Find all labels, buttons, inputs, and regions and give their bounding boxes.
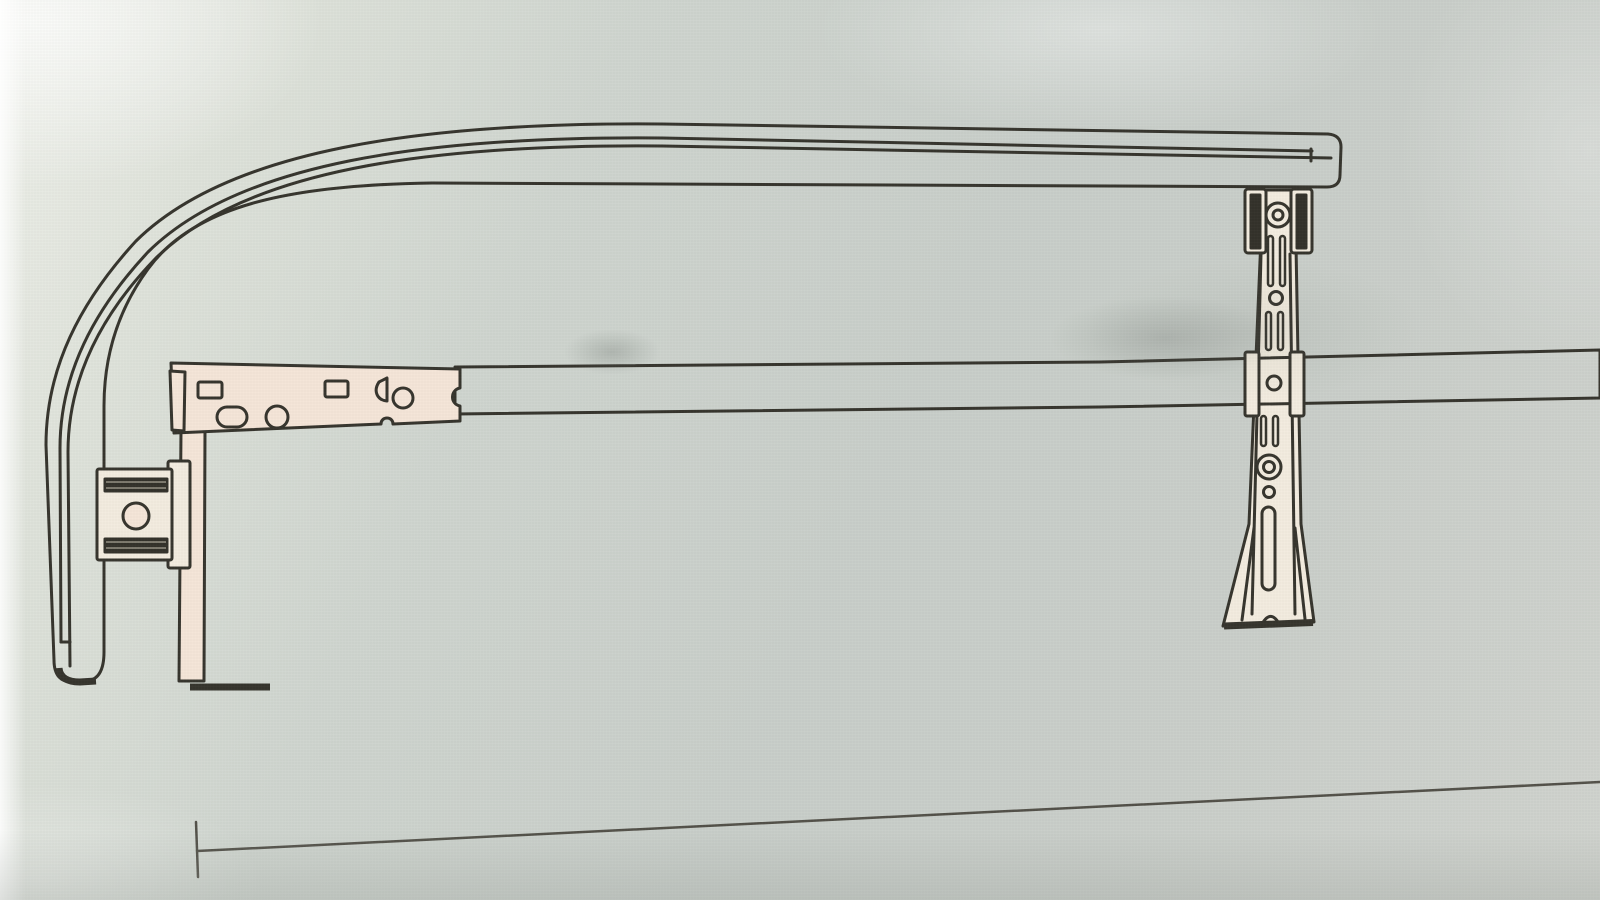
finger-shadow-small	[564, 329, 660, 375]
bracket-plate	[170, 363, 460, 433]
track-end-cap-left	[59, 668, 96, 682]
dimension-rule	[197, 782, 1600, 851]
diagram-canvas	[0, 0, 1600, 900]
dimension-line	[196, 782, 1600, 877]
soft-shade	[1085, 260, 1425, 400]
clamp-screw-hole	[123, 503, 149, 529]
photo-lighting	[564, 260, 1425, 400]
clamp-gripper-top	[103, 477, 169, 493]
bracket-end-tab	[170, 371, 185, 431]
clamp-jaw-right	[1295, 193, 1308, 250]
dimension-end-tick	[196, 822, 198, 877]
wall-clamp	[97, 461, 190, 568]
strut-base-edge	[1224, 623, 1313, 627]
clamp-gripper-bottom	[103, 537, 169, 554]
bracket-leg	[179, 430, 270, 687]
photographed-diagram-page	[0, 0, 1600, 900]
clamp-jaw-left	[1249, 193, 1262, 250]
